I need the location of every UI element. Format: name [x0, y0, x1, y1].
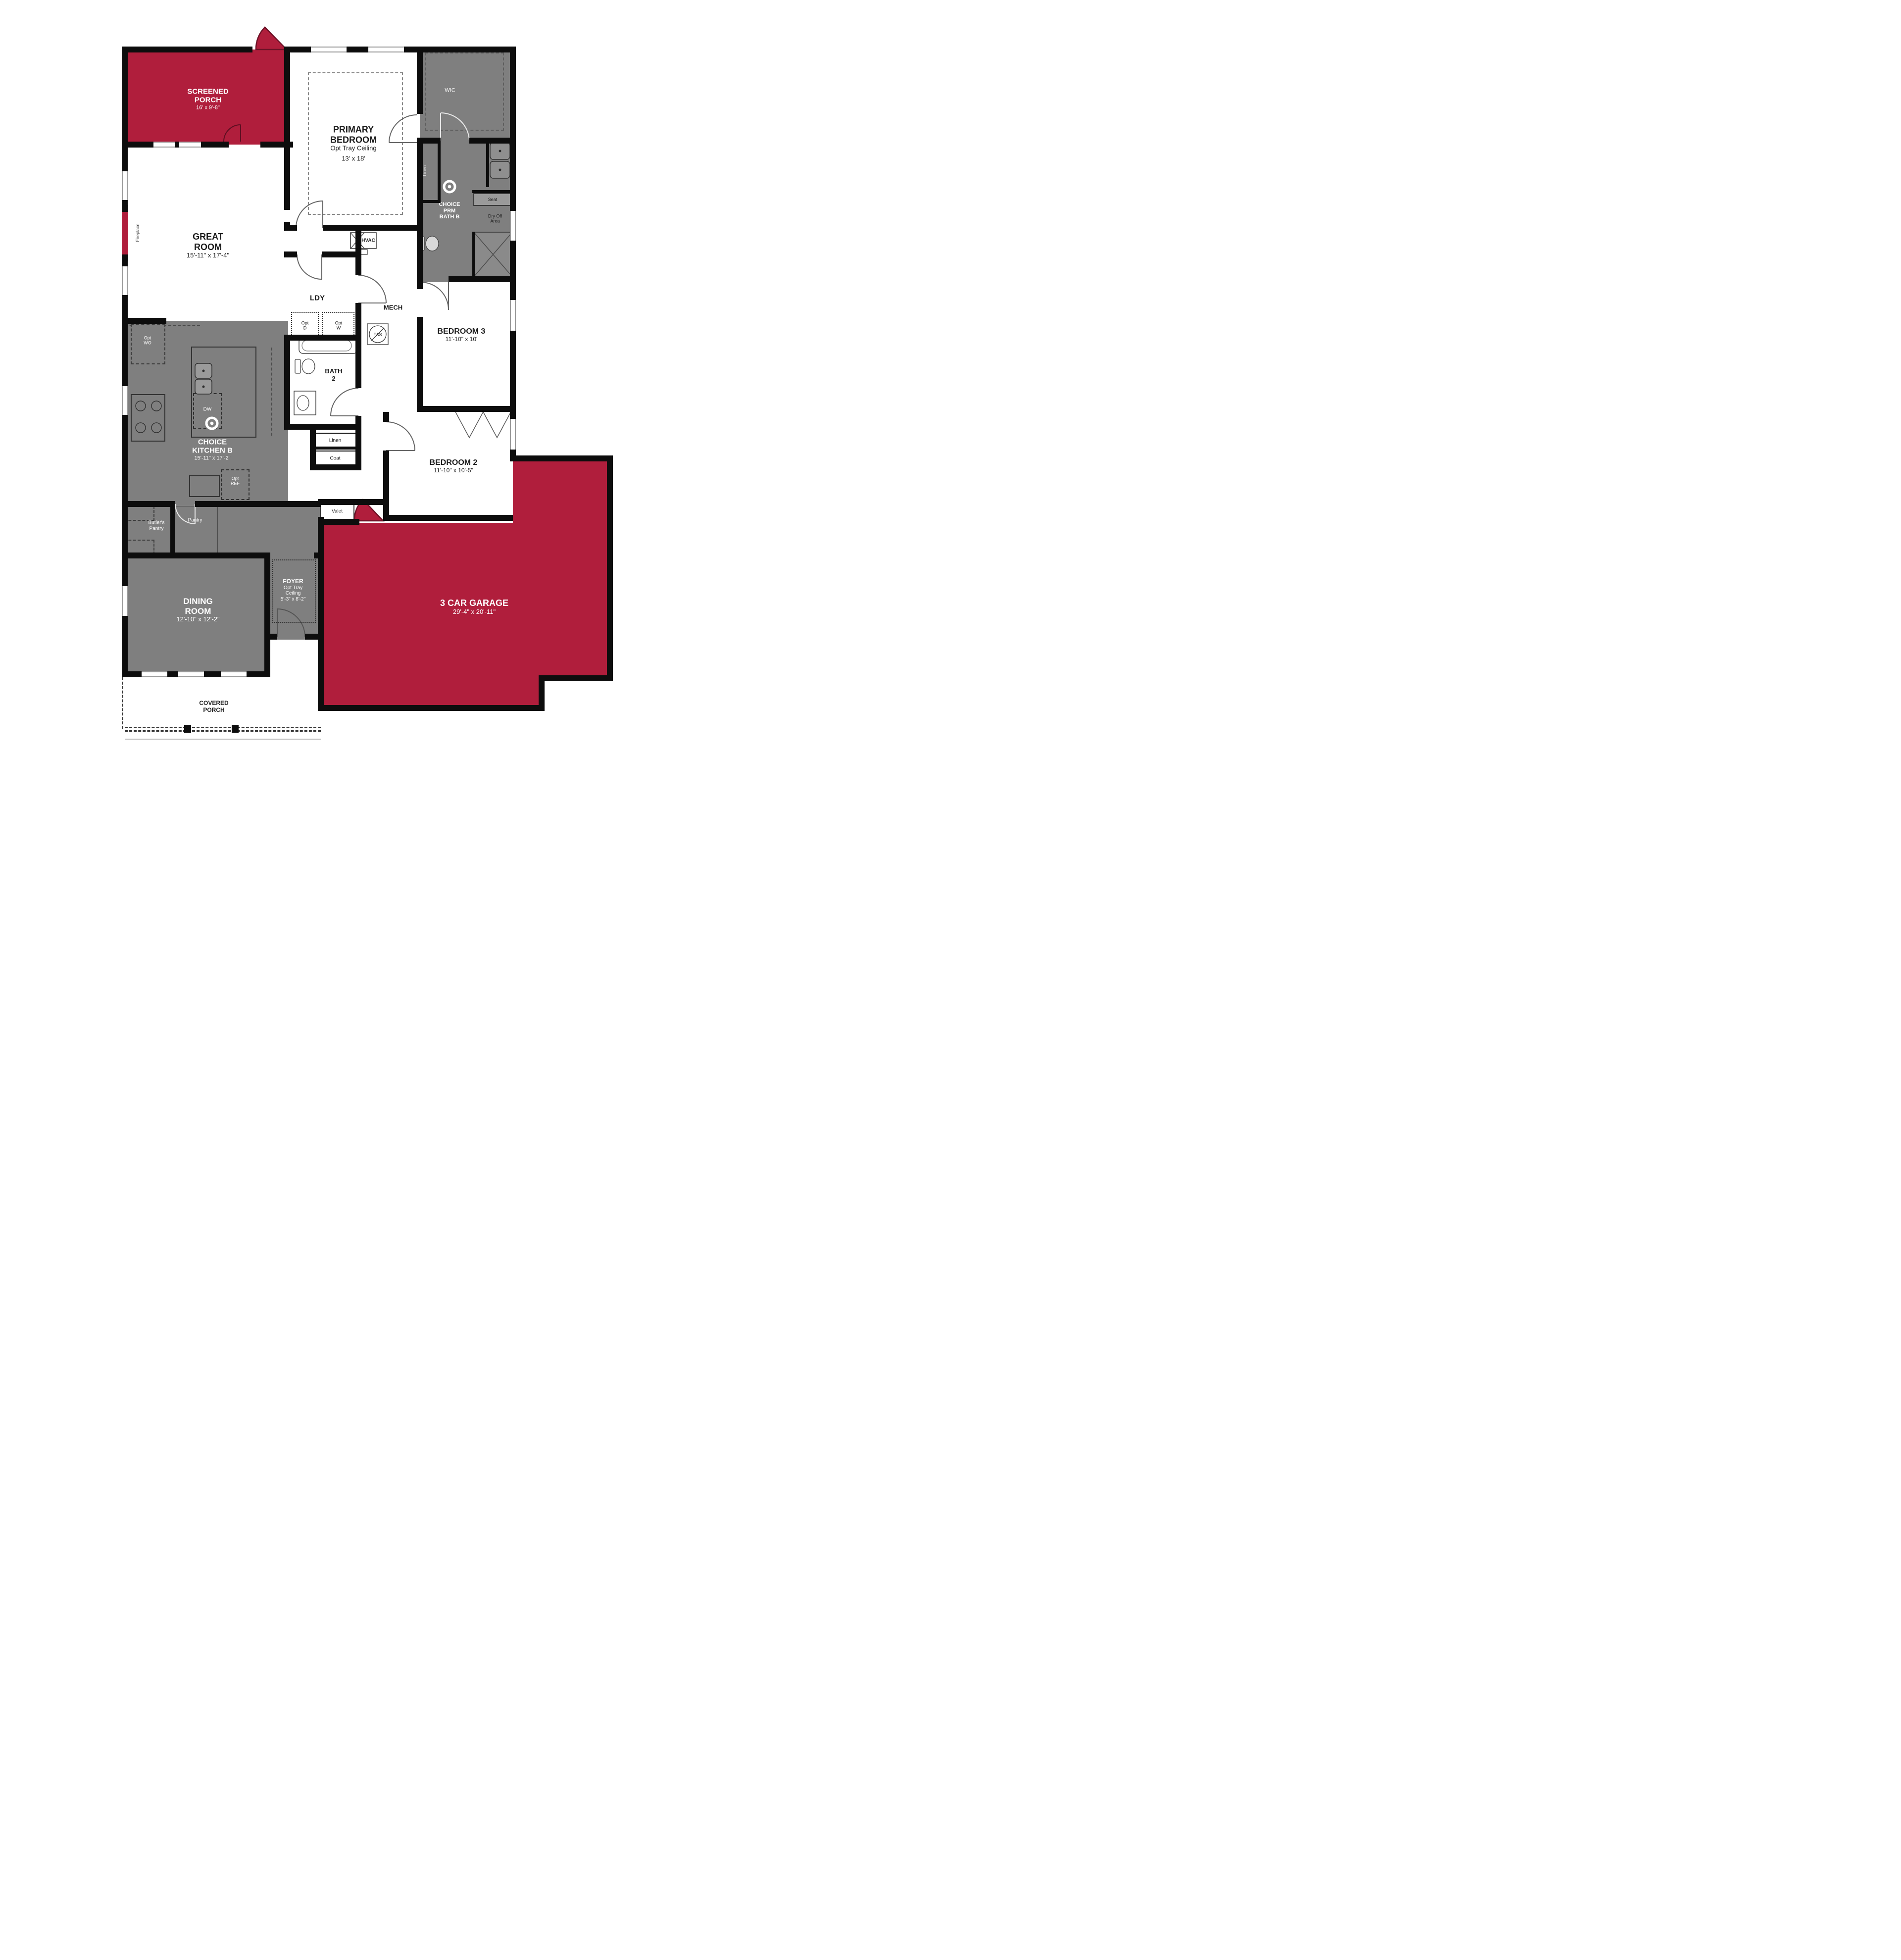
bedroom3-door-arc: [421, 282, 449, 310]
wall: [607, 455, 613, 681]
wall: [318, 519, 359, 525]
label-primary-bedroom: PRIMARY BEDROOM Opt Tray Ceiling 13' x 1…: [330, 124, 377, 162]
wall: [417, 276, 421, 282]
label-bedroom3: BEDROOM 3 11'-10" x 10': [438, 327, 486, 343]
label-seat: Seat: [488, 197, 498, 202]
wall: [310, 464, 361, 470]
wall: [284, 335, 361, 341]
window: [179, 142, 201, 148]
wall: [204, 671, 221, 677]
primary-bath-sinks: [490, 143, 510, 178]
cooktop-burners: [136, 401, 161, 433]
wall: [122, 415, 128, 586]
wall: [284, 341, 290, 430]
label-opt-ref: Opt REF: [231, 476, 240, 487]
window: [510, 300, 516, 331]
porch-greatroom-door-arc: [224, 125, 241, 142]
wall: [284, 145, 290, 210]
wall: [264, 634, 277, 640]
wall: [122, 47, 252, 52]
label-mech: MECH: [384, 304, 402, 312]
wall: [122, 318, 166, 324]
wall: [417, 282, 423, 289]
wall: [417, 144, 423, 282]
front-door-arc: [277, 609, 305, 637]
label-linen-hall: Linen: [329, 438, 341, 444]
wall: [313, 447, 358, 450]
wall: [449, 276, 516, 282]
label-screened-porch: SCREENED PORCH 16' x 9'-8": [187, 87, 228, 110]
wall: [122, 254, 128, 266]
window: [153, 142, 175, 148]
wall: [122, 671, 142, 677]
label-dw: DW: [203, 406, 212, 412]
label-valet: Valet: [332, 508, 343, 514]
label-opt-w: Opt W: [335, 321, 343, 331]
wall: [417, 200, 441, 203]
wall: [355, 430, 361, 470]
label-fireplace: Fireplace: [135, 223, 140, 242]
window: [122, 171, 128, 200]
wic-door-arc: [441, 113, 469, 141]
label-linen-primary: Linen: [422, 165, 427, 176]
bath2-door-arc: [331, 388, 358, 416]
wall: [122, 200, 128, 212]
wall: [539, 675, 613, 681]
wall: [122, 501, 170, 507]
island-sink: [195, 363, 212, 394]
wall: [486, 144, 489, 187]
wall: [383, 451, 389, 515]
label-coat: Coat: [330, 455, 340, 461]
wall: [510, 47, 516, 211]
label-opt-wo: Opt WO: [144, 336, 151, 346]
window: [510, 419, 516, 450]
porch-door-arc: [256, 27, 287, 50]
wall: [417, 406, 513, 412]
window: [122, 266, 128, 295]
bedroom2-door-arc: [386, 422, 415, 451]
label-wic: WIC: [445, 88, 455, 94]
wall: [122, 553, 270, 558]
fas-label: FAS: [373, 332, 382, 337]
window: [510, 211, 516, 241]
wall: [264, 555, 270, 677]
laundry-door-arc: [297, 254, 322, 279]
wall: [347, 47, 368, 52]
wall: [510, 241, 516, 300]
wall: [510, 455, 613, 461]
wall: [122, 47, 128, 171]
label-great-room: GREAT ROOM 15'-11" x 17'-4": [187, 232, 229, 259]
window: [311, 47, 347, 52]
wall: [355, 231, 361, 275]
floor-plan: FAS SCREENED PORCH 16' x 9'-8" PRIMARY B…: [0, 0, 760, 784]
wall: [201, 142, 229, 148]
wall: [318, 517, 324, 711]
choice-icon-bath: [444, 181, 455, 192]
wall: [318, 499, 387, 505]
window: [122, 386, 128, 415]
wall: [284, 251, 297, 257]
wall: [284, 424, 361, 430]
label-choice-prm-bath: CHOICE PRM BATH B: [439, 201, 460, 220]
label-ldy: LDY: [310, 294, 325, 302]
wall: [472, 232, 475, 279]
label-choice-kitchen: CHOICE KITCHEN B 15'-11" x 17'-2": [192, 438, 233, 461]
label-dining-room: DINING ROOM 12'-10" x 12'-2": [176, 597, 219, 623]
label-garage: 3 CAR GARAGE 29'-4" x 20'-11": [440, 598, 508, 616]
wall: [167, 671, 178, 677]
wall: [323, 225, 420, 231]
wall: [122, 295, 128, 386]
wall: [355, 341, 361, 388]
wall: [318, 705, 545, 711]
bedroom-closet-doors: [455, 412, 511, 438]
fixtures-overlay: FAS: [0, 0, 760, 784]
label-opt-d: Opt D: [301, 321, 309, 331]
primary-bedroom-door-arc: [296, 201, 323, 228]
wall: [170, 501, 175, 558]
wall: [383, 412, 389, 422]
wall: [195, 501, 321, 507]
wall: [469, 138, 516, 144]
label-dry-off: Dry Off Area: [488, 214, 502, 224]
label-pantry: Pantry: [188, 517, 202, 523]
wall: [322, 251, 355, 257]
label-hvac: HVAC: [361, 238, 375, 244]
label-bath2: BATH 2: [325, 368, 342, 383]
window: [178, 671, 204, 677]
window: [122, 586, 128, 616]
wall: [417, 47, 423, 114]
wall: [417, 138, 441, 144]
wall: [284, 225, 297, 231]
primary-bath-door-arc: [389, 115, 417, 143]
wall: [438, 144, 441, 202]
wall: [122, 142, 153, 148]
window: [368, 47, 404, 52]
wall: [175, 142, 179, 148]
bath2-sink: [294, 391, 316, 415]
label-bedroom2: BEDROOM 2 11'-10" x 10'-5": [430, 458, 478, 474]
mech-door-arc: [358, 275, 386, 303]
wall: [122, 616, 128, 677]
shower-x: [474, 233, 512, 276]
wall: [383, 515, 513, 521]
wall: [247, 671, 270, 677]
wall: [417, 317, 423, 412]
wall: [472, 190, 513, 193]
wall: [284, 47, 290, 145]
window: [142, 671, 167, 677]
choice-icon-kitchen: [206, 418, 217, 429]
window: [221, 671, 247, 677]
label-covered-porch: COVERED PORCH: [199, 700, 228, 714]
label-foyer: FOYER Opt Tray Ceiling 5'-3" x 8'-2": [281, 578, 305, 602]
label-butlers-pantry: Butler's Pantry: [148, 520, 164, 532]
bath2-toilet: [295, 359, 315, 374]
